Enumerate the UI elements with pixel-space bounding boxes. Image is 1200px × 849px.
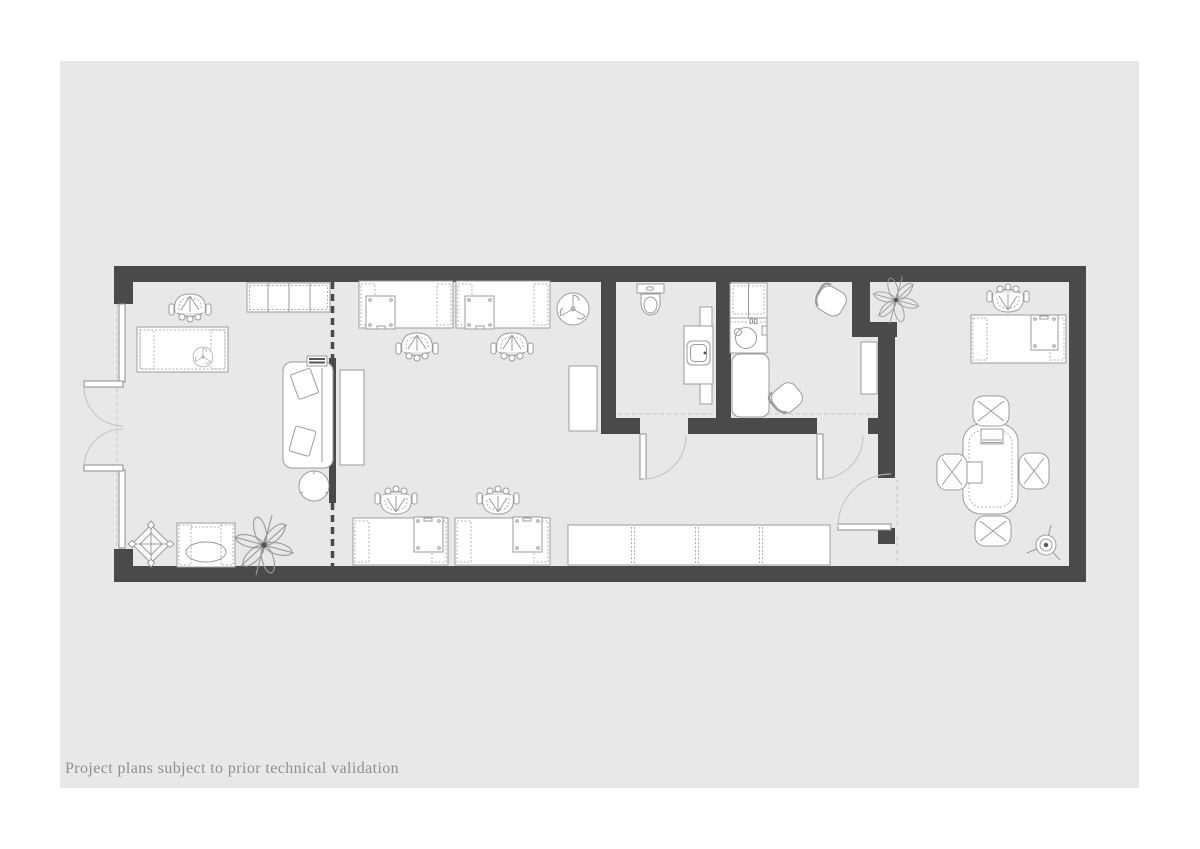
kitchen-chair-2 (766, 378, 806, 417)
armchair (177, 523, 235, 567)
task-chair-4 (477, 486, 519, 514)
door-meeting-room (838, 474, 897, 562)
task-chair-2 (491, 333, 533, 361)
meeting-chair-2 (937, 454, 967, 490)
meeting-chair-4 (975, 516, 1011, 546)
door-kitchenette (817, 434, 863, 479)
entrance-door-upper (84, 381, 123, 387)
entrance-doors (84, 304, 125, 548)
pedestal-fan (557, 293, 589, 325)
page: Project plans subject to prior technical… (0, 0, 1200, 849)
plant (873, 277, 920, 324)
storage-cabinet (569, 366, 597, 431)
floor-plan (0, 0, 1200, 849)
toilet (637, 284, 664, 315)
task-chair-3 (375, 486, 417, 514)
plant (234, 515, 294, 575)
lounge-desk (137, 327, 228, 372)
workstation-desk-1 (359, 281, 453, 329)
entrance-glass-panel-upper (119, 304, 125, 382)
task-chair-1 (396, 333, 438, 361)
desk-fan-icon (193, 347, 213, 367)
sideboard (568, 525, 830, 565)
table-item (981, 429, 1003, 444)
lounge-office-chair (169, 294, 211, 322)
meeting-chair-3 (1019, 453, 1049, 489)
decor-ornament (128, 521, 174, 567)
kitchen-chair-1 (811, 281, 850, 319)
workstation-desk-3 (353, 517, 448, 565)
kitchen-cabinet (861, 342, 877, 394)
entrance-glass-panel-lower (119, 470, 125, 548)
meeting-chair-1 (973, 396, 1009, 426)
sofa (283, 362, 333, 468)
caption: Project plans subject to prior technical… (65, 760, 399, 778)
task-chair-5 (987, 284, 1029, 312)
coffee-table (299, 471, 329, 501)
entrance-door-lower (84, 465, 123, 471)
meeting-room-desk (971, 315, 1066, 363)
kitchen-counter (730, 283, 767, 353)
workstation-desk-4 (455, 517, 550, 565)
washbasin (684, 307, 713, 404)
floor-lamp (1027, 525, 1060, 560)
workstation-desk-2 (456, 281, 550, 329)
door-wc (640, 434, 686, 479)
meeting-table (963, 424, 1018, 514)
media-console (340, 370, 364, 465)
shelving-unit (247, 283, 330, 312)
kitchen-table (732, 354, 769, 417)
shelf-box (307, 356, 327, 366)
